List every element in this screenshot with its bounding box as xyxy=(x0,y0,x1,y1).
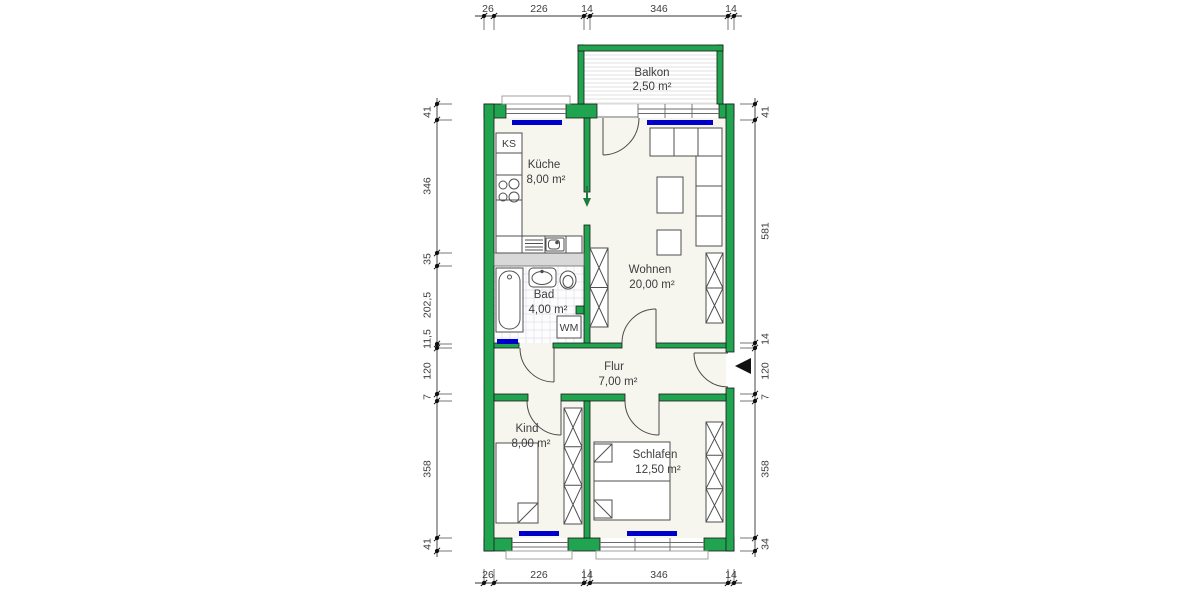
dim-bottom-3: 346 xyxy=(650,569,668,581)
bedroom-window-frame xyxy=(600,538,704,551)
bath-sill xyxy=(497,339,518,344)
floor-plan-drawing: Balkon 2,50 m² Küche 8,00 m² Wohnen 20,0… xyxy=(0,0,1200,600)
dim-left-4: 11,5 xyxy=(422,329,434,349)
dim-top-4: 14 xyxy=(725,3,737,15)
child-wardrobe xyxy=(564,408,582,524)
wall-hall-bottom-a xyxy=(494,394,528,401)
kitchen-sink-icon xyxy=(546,238,564,251)
dim-right-3: 120 xyxy=(760,362,772,380)
room-label-kind: Kind xyxy=(515,423,538,435)
room-label-wohnen: Wohnen xyxy=(629,264,672,276)
dim-left-5: 120 xyxy=(422,362,434,380)
balcony-wall-right xyxy=(717,45,723,104)
bathtub-icon xyxy=(496,268,523,332)
dim-bottom-4: 14 xyxy=(725,569,737,581)
room-label-kueche: Küche xyxy=(528,159,561,171)
dim-left-0: 41 xyxy=(422,106,434,118)
living-wardrobe-left xyxy=(590,248,608,327)
room-area-kueche: 8,00 m² xyxy=(527,174,566,186)
dim-top-0: 26 xyxy=(482,3,494,15)
dim-top-1: 226 xyxy=(530,3,548,15)
armchair xyxy=(657,230,681,255)
dim-bottom-0: 26 xyxy=(482,569,494,581)
wall-kitchen-living-upper xyxy=(584,118,590,192)
wall-hall-top-b xyxy=(553,343,622,348)
balcony-wall-top xyxy=(578,45,723,51)
room-label-schlafen: Schlafen xyxy=(633,449,678,461)
wall-bottom-mid xyxy=(568,538,600,551)
room-area-schlafen: 12,50 m² xyxy=(635,464,681,476)
wall-stub-bath xyxy=(576,306,584,314)
dim-left-3: 202,5 xyxy=(422,292,434,318)
child-window-frame xyxy=(512,543,568,548)
dim-top-2: 14 xyxy=(581,3,593,15)
room-area-wohnen: 20,00 m² xyxy=(629,279,675,291)
wall-kitchen-living-lower xyxy=(584,225,590,344)
dim-bottom-2: 14 xyxy=(581,569,593,581)
child-sill xyxy=(519,531,559,536)
wall-hall-bottom-c xyxy=(659,394,726,401)
bedroom-sill xyxy=(627,531,677,536)
wall-right-lower xyxy=(726,388,734,551)
balcony-wall-left xyxy=(578,45,584,104)
dim-right-0: 41 xyxy=(760,106,772,118)
room-label-balkon: Balkon xyxy=(634,67,669,79)
wall-top-mid xyxy=(566,104,597,118)
single-bed xyxy=(496,443,538,523)
room-area-kind: 8,00 m² xyxy=(512,438,551,450)
wash-basin-icon xyxy=(529,268,556,287)
room-area-bad: 4,00 m² xyxy=(529,304,568,316)
fridge-label: KS xyxy=(502,138,516,150)
wall-kitchen-bath-grey xyxy=(494,253,584,266)
kitchen-sill xyxy=(512,120,562,125)
dim-right-5: 358 xyxy=(760,460,772,478)
wall-right-upper xyxy=(726,104,734,352)
dim-left-8: 41 xyxy=(422,538,434,550)
washer-label: WM xyxy=(560,322,579,334)
living-sill xyxy=(647,120,713,125)
entrance-arrow-icon xyxy=(735,358,751,374)
dim-left-2: 35 xyxy=(422,253,434,265)
coffee-table xyxy=(657,177,683,213)
room-label-bad: Bad xyxy=(534,289,554,301)
kitchen-window-outer-sill xyxy=(502,96,570,104)
wall-hall-top-c xyxy=(656,343,726,348)
dim-right-1: 581 xyxy=(760,222,772,240)
dim-right-4: 7 xyxy=(760,394,772,400)
bedroom-window-outer-sill xyxy=(596,551,708,559)
dim-bottom-1: 226 xyxy=(530,569,548,581)
kitchen-window-frame xyxy=(506,109,566,114)
room-label-flur: Flur xyxy=(604,361,624,373)
wall-left xyxy=(484,104,494,551)
wall-hall-bottom-b xyxy=(561,394,625,401)
dim-top-3: 346 xyxy=(650,3,668,15)
bedroom-wardrobe xyxy=(706,422,723,522)
dim-left-1: 346 xyxy=(422,177,434,195)
floor-plan-canvas: Balkon 2,50 m² Küche 8,00 m² Wohnen 20,0… xyxy=(0,0,1200,600)
dim-right-6: 34 xyxy=(760,538,772,550)
dim-left-6: 7 xyxy=(422,394,434,400)
wall-child-bedroom xyxy=(584,401,590,538)
room-area-flur: 7,00 m² xyxy=(599,376,638,388)
child-window-outer-sill xyxy=(506,551,572,559)
living-wardrobe-right xyxy=(706,253,723,323)
dim-left-7: 358 xyxy=(422,460,434,478)
living-window-frame xyxy=(638,104,719,118)
room-area-balkon: 2,50 m² xyxy=(633,81,672,93)
dim-right-2: 14 xyxy=(760,333,772,345)
toilet-icon xyxy=(560,271,576,289)
